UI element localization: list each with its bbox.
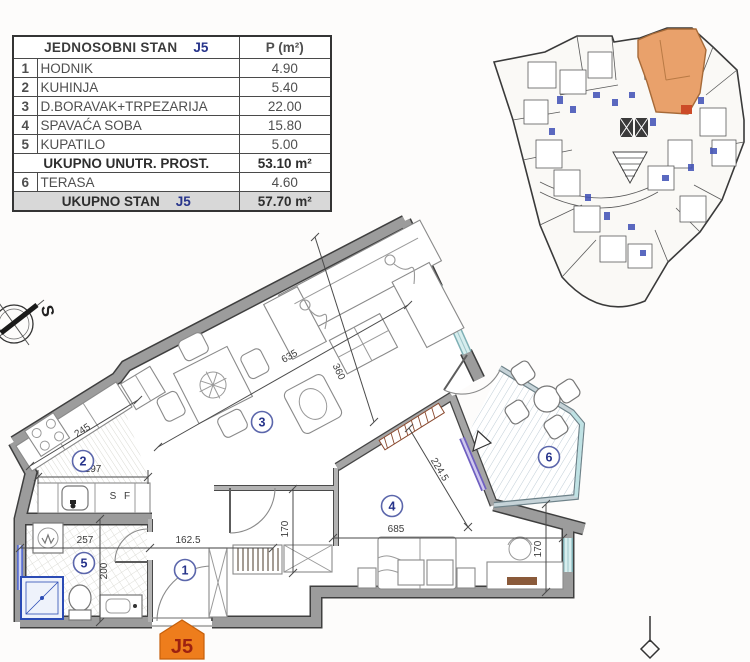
- row-area: 5.40: [239, 78, 331, 97]
- table-row: 5 KUPATILO 5.00: [13, 135, 331, 154]
- row-name: KUHINJA: [37, 78, 239, 97]
- dim-hall-depth: 170: [280, 520, 291, 537]
- svg-text:3: 3: [259, 416, 266, 430]
- room-label-6: 6: [539, 447, 560, 468]
- table-title: JEDNOSOBNI STAN: [44, 40, 177, 55]
- total-unit-code: J5: [176, 194, 191, 209]
- svg-text:2: 2: [80, 455, 87, 469]
- floorplan-page: S: [0, 0, 750, 662]
- subtotal-row: UKUPNO UNUTR. PROST. 53.10 m²: [13, 154, 331, 173]
- dim-bedroom-length: 685: [388, 524, 405, 535]
- kitchen-sink-icon: [62, 486, 88, 510]
- nightstand: [457, 568, 475, 588]
- svg-text:4: 4: [389, 500, 396, 514]
- area-table: JEDNOSOBNI STANJ5 P (m²) 1 HODNIK 4.90 2…: [12, 35, 332, 212]
- toilet-icon: [69, 585, 91, 620]
- subtotal-label: UKUPNO UNUTR. PROST.: [13, 154, 239, 173]
- row-num: 5: [13, 135, 37, 154]
- svg-text:6: 6: [546, 451, 553, 465]
- svg-text:1: 1: [182, 564, 189, 578]
- counter-letter-s: S: [110, 491, 117, 502]
- counter-letter-f: F: [124, 491, 130, 502]
- compass-icon: S: [0, 300, 58, 345]
- row-name: D.BORAVAK+TRPEZARIJA: [37, 97, 239, 116]
- bathroom-sink-icon: [100, 595, 142, 618]
- nightstand: [358, 568, 376, 588]
- unit-badge-label: J5: [171, 636, 193, 658]
- dim-bedroom-depth: 170: [533, 540, 544, 557]
- table-row: 3 D.BORAVAK+TRPEZARIJA 22.00: [13, 97, 331, 116]
- total-label: UKUPNO STAN: [62, 194, 160, 209]
- row-area: 15.80: [239, 116, 331, 135]
- unit-code: J5: [193, 40, 208, 55]
- dim-hall-width: 162.5: [175, 535, 200, 546]
- room-label-4: 4: [382, 496, 403, 517]
- dim-bath-depth: 200: [99, 562, 110, 579]
- row-num: 4: [13, 116, 37, 135]
- subtotal-unit: m²: [295, 156, 312, 171]
- total-unit: m²: [295, 194, 312, 209]
- svg-text:5: 5: [81, 557, 88, 571]
- room-label-5: 5: [74, 553, 95, 574]
- row-name: KUPATILO: [37, 135, 239, 154]
- row-area: 5.00: [239, 135, 331, 154]
- row-area: 22.00: [239, 97, 331, 116]
- row-area: 4.60: [239, 173, 331, 192]
- survey-marker-icon: [641, 616, 659, 658]
- compass-north-label: S: [37, 303, 58, 318]
- dim-bath-width: 257: [77, 535, 94, 546]
- laptop-icon: [507, 577, 537, 585]
- room-label-1: 1: [175, 560, 196, 581]
- row-num: 6: [13, 173, 37, 192]
- hall-shaft: [209, 548, 227, 617]
- hall-wardrobe: [233, 545, 332, 574]
- shower-icon: [21, 577, 63, 619]
- total-value: 57.70: [258, 194, 292, 209]
- row-num: 2: [13, 78, 37, 97]
- table-row: 2 KUHINJA 5.40: [13, 78, 331, 97]
- subtotal-value: 53.10: [258, 156, 292, 171]
- area-column-header: P (m²): [239, 36, 331, 59]
- row-name: TERASA: [37, 173, 239, 192]
- row-num: 3: [13, 97, 37, 116]
- total-row: UKUPNO STANJ5 57.70 m²: [13, 192, 331, 212]
- table-row: 4 SPAVAĆA SOBA 15.80: [13, 116, 331, 135]
- apartment-plan: S F: [12, 220, 584, 626]
- row-num: 1: [13, 59, 37, 78]
- terrace-row: 6 TERASA 4.60: [13, 173, 331, 192]
- table-header-row: JEDNOSOBNI STANJ5 P (m²): [13, 36, 331, 59]
- room-label-3: 3: [252, 412, 273, 433]
- key-plan-unit-door: [681, 105, 692, 114]
- table-row: 1 HODNIK 4.90: [13, 59, 331, 78]
- row-name: SPAVAĆA SOBA: [37, 116, 239, 135]
- row-area: 4.90: [239, 59, 331, 78]
- row-name: HODNIK: [37, 59, 239, 78]
- key-plan: [494, 28, 744, 307]
- room-label-2: 2: [73, 451, 94, 472]
